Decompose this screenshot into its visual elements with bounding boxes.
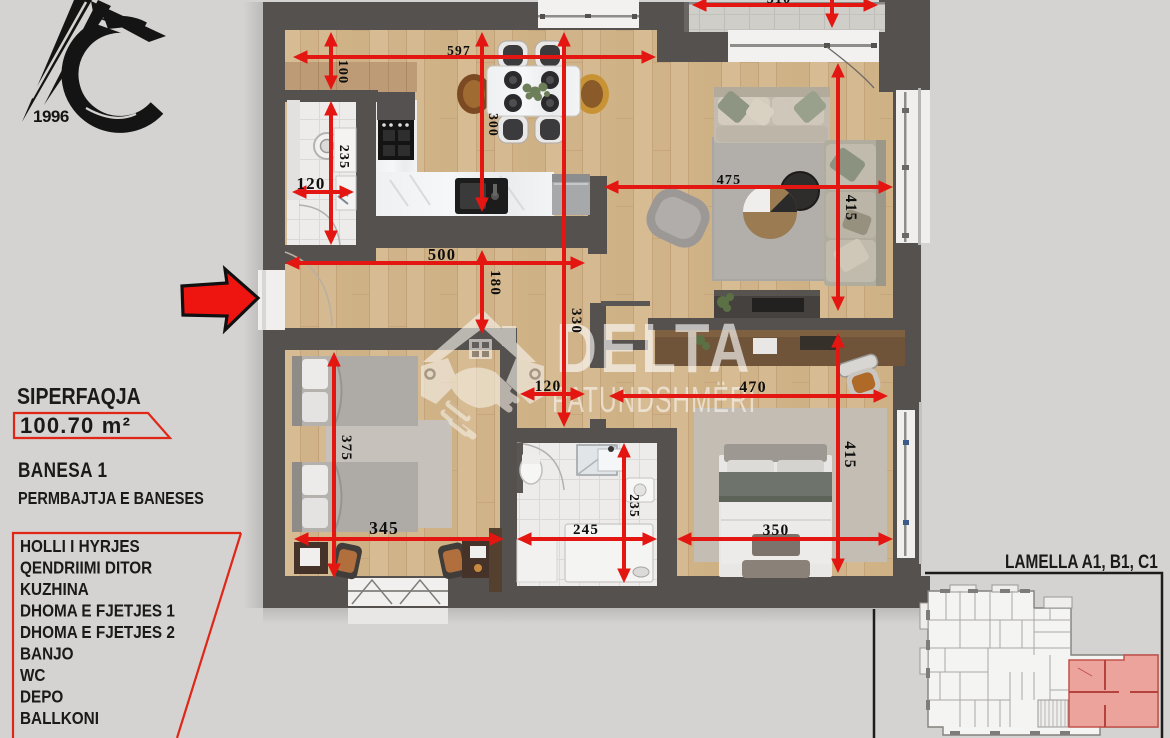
- svg-text:1996: 1996: [33, 107, 69, 126]
- svg-text:WC: WC: [20, 665, 45, 685]
- svg-text:BALLKONI: BALLKONI: [20, 708, 99, 728]
- svg-text:SIPERFAQJA: SIPERFAQJA: [17, 384, 141, 410]
- svg-text:597: 597: [447, 43, 471, 58]
- svg-text:DHOMA E FJETJES 2: DHOMA E FJETJES 2: [20, 622, 175, 642]
- svg-text:330: 330: [568, 308, 584, 334]
- svg-text:LAMELLA A1, B1, C1: LAMELLA A1, B1, C1: [1005, 550, 1158, 572]
- svg-text:HOLLI I HYRJES: HOLLI I HYRJES: [20, 536, 140, 556]
- svg-text:345: 345: [369, 518, 399, 538]
- svg-text:PERMBAJTJA E BANESES: PERMBAJTJA E BANESES: [18, 489, 204, 509]
- svg-text:235: 235: [627, 494, 642, 518]
- svg-text:QENDRIIMI DITOR: QENDRIIMI DITOR: [20, 557, 152, 577]
- svg-text:DEPO: DEPO: [20, 686, 63, 706]
- svg-text:BANJO: BANJO: [20, 643, 74, 663]
- svg-text:DHOMA E FJETJES 1: DHOMA E FJETJES 1: [20, 600, 175, 620]
- svg-text:500: 500: [428, 245, 456, 264]
- svg-text:415: 415: [841, 441, 858, 469]
- svg-text:180: 180: [487, 270, 503, 296]
- svg-text:300: 300: [486, 113, 501, 137]
- svg-text:120: 120: [296, 174, 325, 193]
- svg-text:DELTA: DELTA: [556, 309, 753, 387]
- svg-text:415: 415: [842, 195, 859, 222]
- svg-text:100.70 m²: 100.70 m²: [20, 413, 131, 438]
- svg-text:375: 375: [338, 435, 354, 461]
- svg-text:120: 120: [535, 378, 562, 395]
- svg-text:BANESA 1: BANESA 1: [18, 458, 107, 482]
- svg-text:475: 475: [717, 173, 742, 188]
- svg-text:KUZHINA: KUZHINA: [20, 579, 89, 599]
- svg-text:100: 100: [335, 60, 350, 85]
- svg-text:310: 310: [767, 0, 792, 7]
- svg-text:PATUNDSHMËRI: PATUNDSHMËRI: [552, 379, 756, 420]
- svg-text:245: 245: [573, 522, 599, 538]
- svg-text:470: 470: [739, 379, 767, 396]
- svg-text:235: 235: [336, 145, 351, 170]
- svg-text:350: 350: [763, 522, 790, 539]
